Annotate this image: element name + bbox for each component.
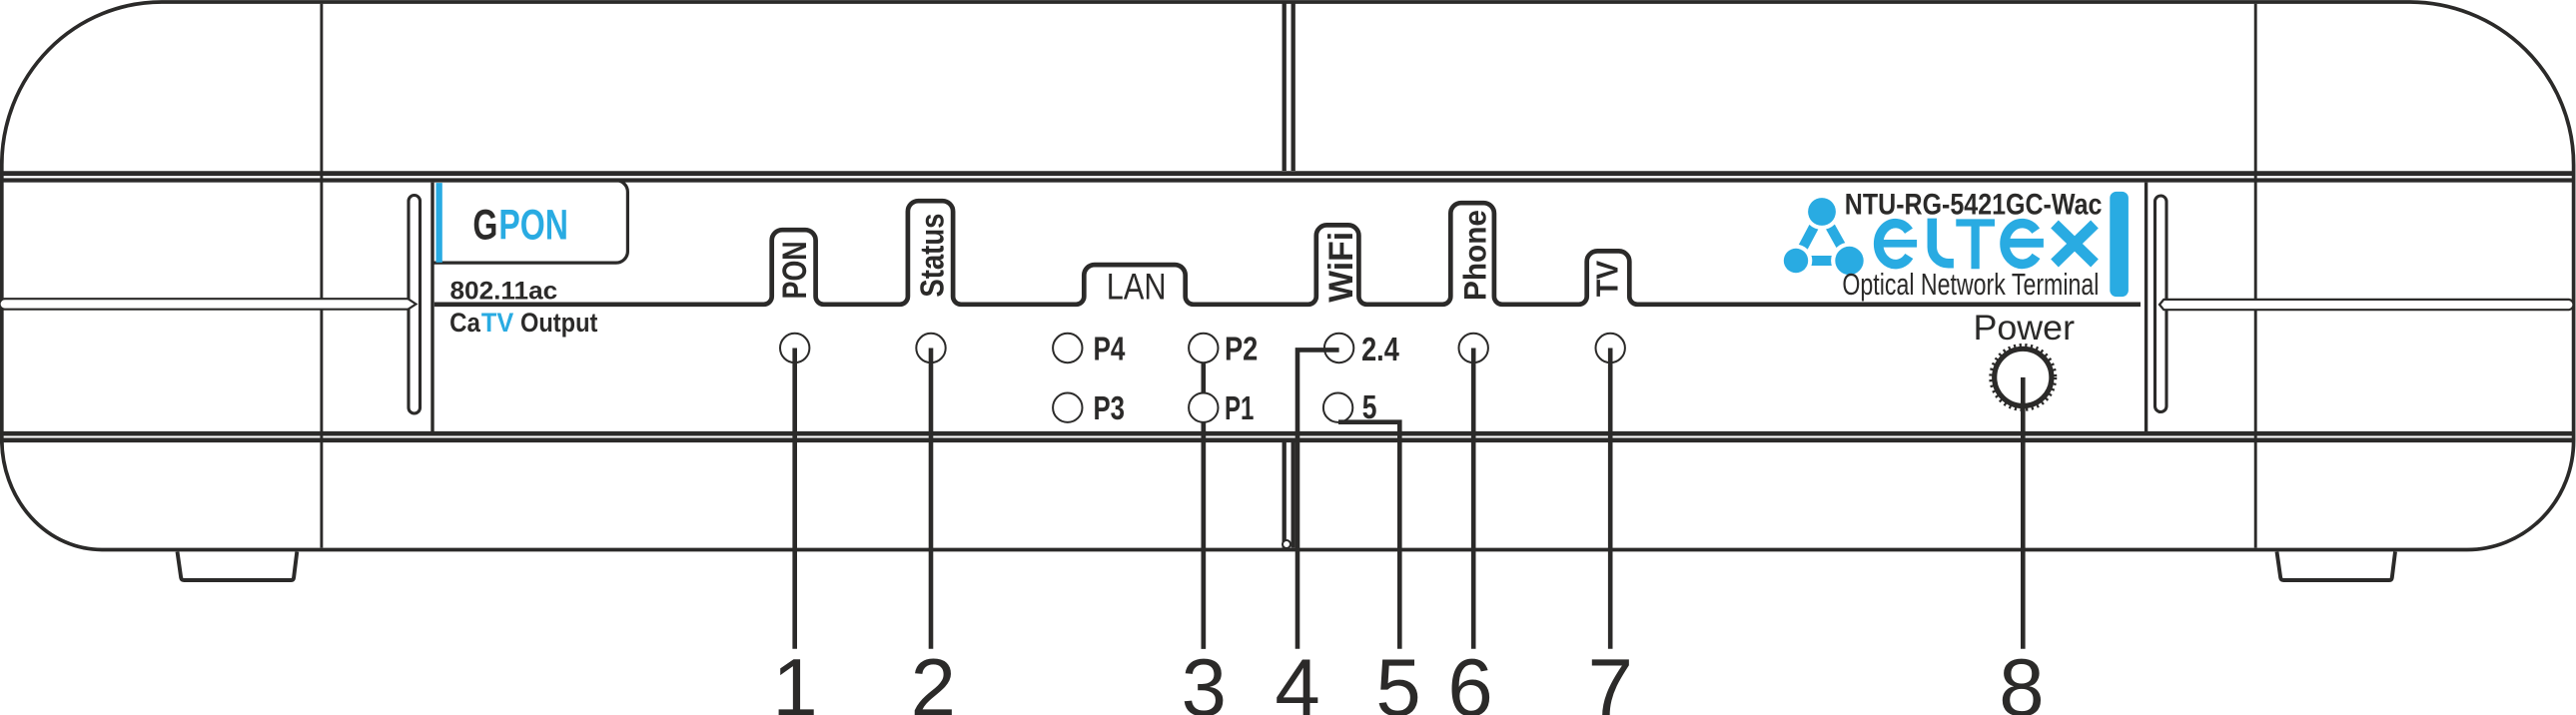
svg-text:5: 5	[1362, 388, 1377, 425]
svg-text:6: 6	[1447, 643, 1492, 715]
svg-text:7: 7	[1588, 643, 1633, 715]
svg-text:3: 3	[1182, 643, 1227, 715]
svg-text:PON: PON	[498, 202, 568, 250]
svg-text:PON: PON	[776, 241, 814, 299]
svg-text:Power: Power	[1974, 308, 2076, 348]
svg-text:802.11ac: 802.11ac	[450, 277, 558, 305]
svg-text:LAN: LAN	[1107, 266, 1167, 307]
svg-text:1: 1	[772, 643, 817, 715]
svg-text:4: 4	[1275, 643, 1319, 715]
svg-text:P3: P3	[1094, 389, 1126, 426]
svg-text:2: 2	[911, 643, 956, 715]
svg-text:Optical Network Terminal: Optical Network Terminal	[1842, 268, 2099, 302]
svg-text:G: G	[472, 202, 497, 250]
svg-text:Phone: Phone	[1457, 210, 1493, 301]
svg-text:P2: P2	[1225, 330, 1258, 366]
svg-text:P4: P4	[1094, 330, 1126, 366]
svg-text:Status: Status	[913, 214, 950, 298]
svg-text:8: 8	[1999, 643, 2044, 715]
svg-text:5: 5	[1375, 643, 1420, 715]
svg-text:NTU-RG-5421GC-Wac: NTU-RG-5421GC-Wac	[1845, 189, 2103, 222]
svg-text:CaTVOutput: CaTVOutput	[449, 308, 597, 338]
svg-text:WiFi: WiFi	[1322, 232, 1360, 303]
svg-text:P1: P1	[1225, 389, 1254, 426]
svg-text:TV: TV	[1590, 260, 1624, 297]
svg-text:2.4: 2.4	[1361, 331, 1399, 367]
